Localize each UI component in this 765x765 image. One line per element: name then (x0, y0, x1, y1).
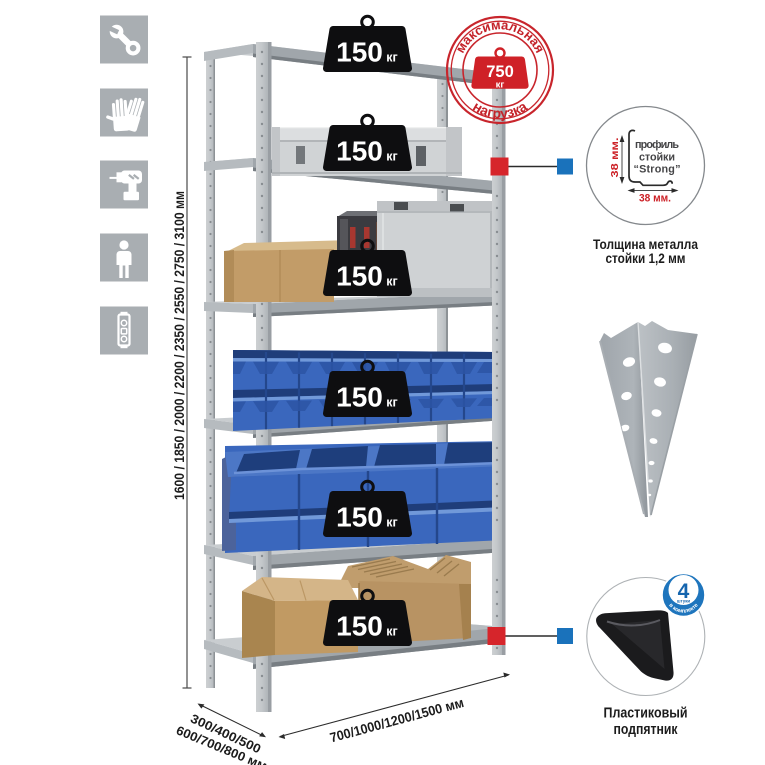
svg-text:150: 150 (336, 611, 383, 642)
svg-text:38 мм.: 38 мм. (639, 193, 671, 205)
svg-text:кг: кг (496, 80, 505, 91)
svg-text:профиль: профиль (635, 139, 679, 151)
svg-text:кг: кг (386, 625, 397, 639)
svg-text:150: 150 (336, 136, 383, 167)
svg-text:150: 150 (336, 382, 383, 413)
svg-text:стойки 1,2 мм: стойки 1,2 мм (606, 250, 686, 266)
svg-text:кг: кг (386, 275, 397, 289)
svg-text:150: 150 (336, 502, 383, 533)
svg-text:штуки: штуки (677, 599, 691, 604)
svg-text:700/1000/1200/1500 мм: 700/1000/1200/1500 мм (328, 695, 465, 745)
svg-text:подпятник: подпятник (614, 721, 678, 738)
svg-text:“Strong”: “Strong” (634, 164, 681, 176)
svg-text:Пластиковый: Пластиковый (604, 705, 688, 722)
svg-text:150: 150 (336, 37, 383, 68)
svg-text:стойки: стойки (639, 152, 675, 164)
svg-text:кг: кг (386, 396, 397, 410)
svg-text:750: 750 (486, 63, 514, 81)
svg-text:150: 150 (336, 261, 383, 292)
svg-text:1600 / 1850 / 2000 / 2200 / 23: 1600 / 1850 / 2000 / 2200 / 2350 / 2550 … (172, 191, 187, 500)
svg-text:кг: кг (386, 51, 397, 65)
svg-text:кг: кг (386, 516, 397, 530)
svg-text:38 мм.: 38 мм. (609, 137, 621, 177)
svg-text:кг: кг (386, 150, 397, 164)
